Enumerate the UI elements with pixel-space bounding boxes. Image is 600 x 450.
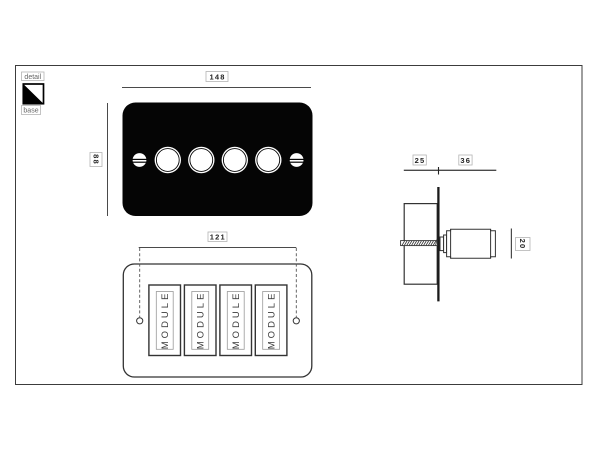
svg-text:MODULE: MODULE (196, 291, 207, 350)
svg-text:121: 121 (210, 233, 226, 242)
svg-text:base: base (23, 108, 38, 115)
svg-text:MODULE: MODULE (231, 291, 242, 350)
svg-text:25: 25 (415, 156, 426, 165)
svg-text:MODULE: MODULE (160, 291, 171, 350)
svg-text:MODULE: MODULE (267, 291, 278, 350)
svg-text:detail: detail (24, 74, 41, 81)
svg-text:20: 20 (518, 239, 527, 250)
svg-text:88: 88 (91, 154, 100, 165)
svg-text:36: 36 (460, 156, 471, 165)
svg-text:148: 148 (210, 72, 226, 81)
